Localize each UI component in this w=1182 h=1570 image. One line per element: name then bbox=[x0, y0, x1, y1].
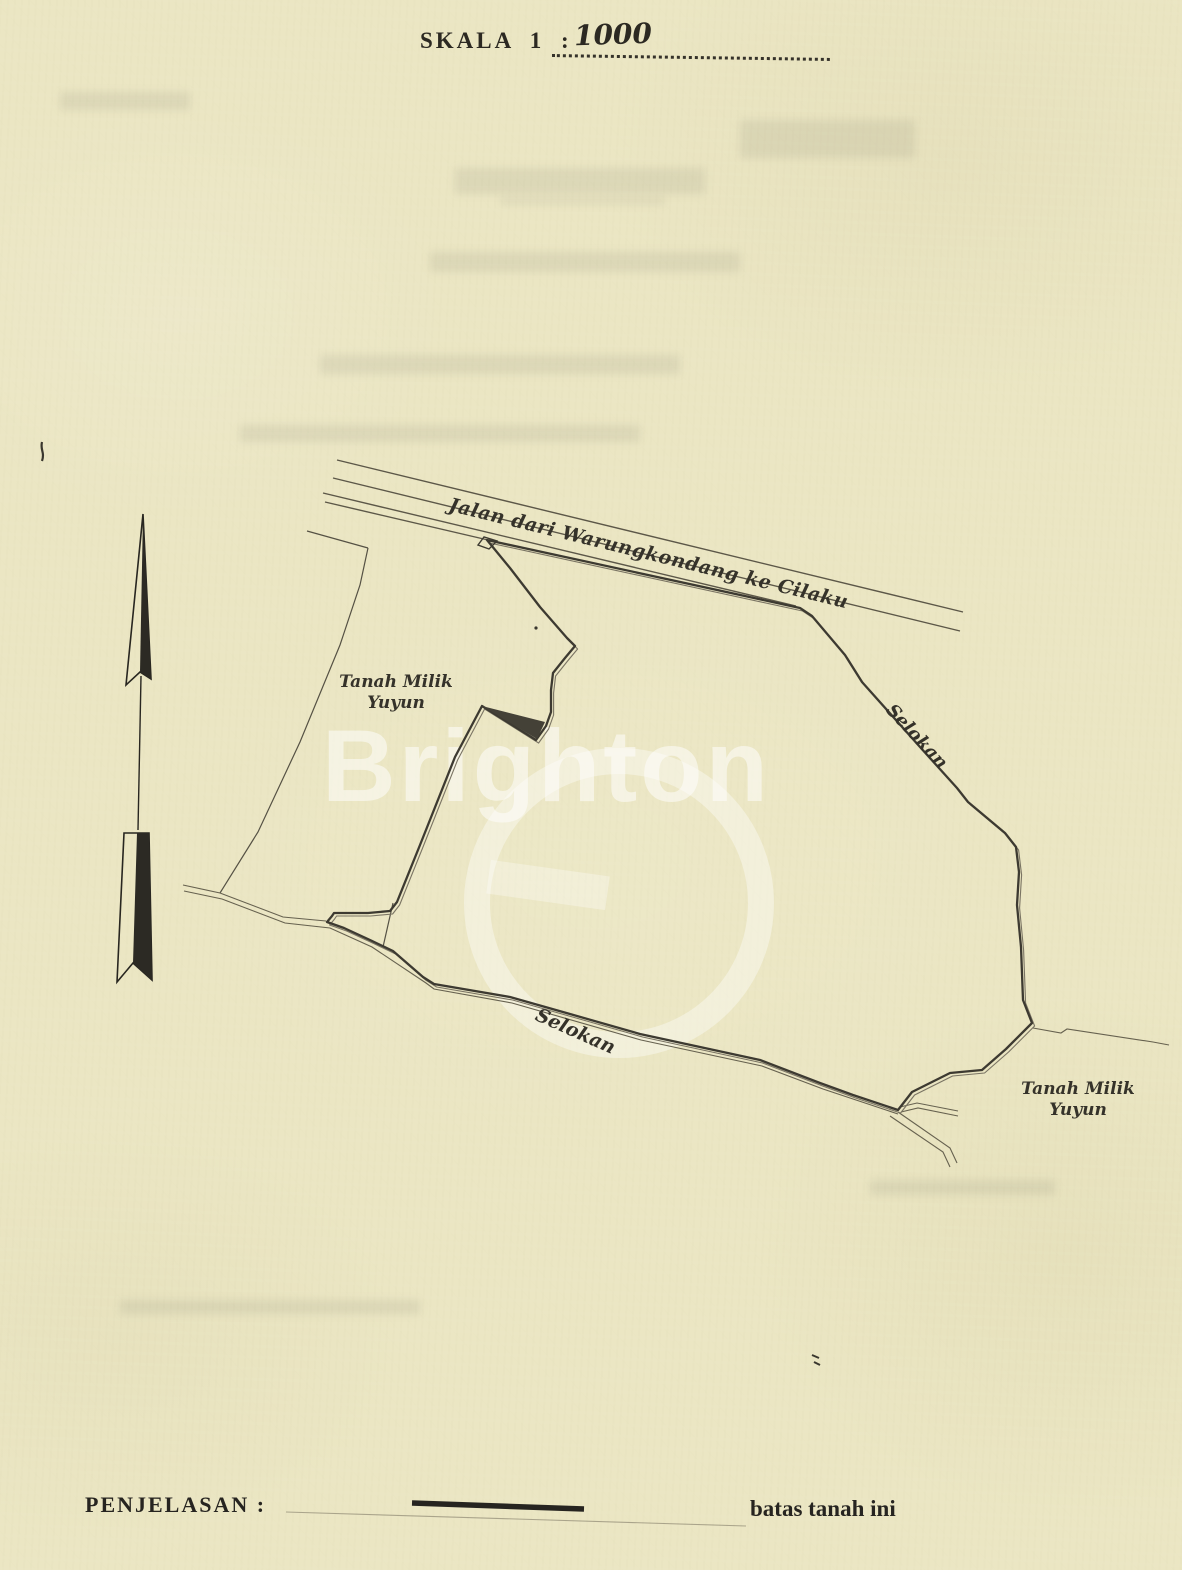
ditch-bottom-lower-line bbox=[184, 891, 898, 1114]
legend-line-meaning: batas tanah ini bbox=[750, 1496, 896, 1522]
ditch-continuation bbox=[898, 1112, 957, 1163]
owner-label-left: Tanah Milik Yuyun bbox=[326, 672, 466, 714]
north-arrow bbox=[117, 514, 152, 982]
ink-specks bbox=[42, 442, 820, 1365]
north-arrow-head-fill bbox=[140, 514, 151, 679]
ditch-bottom-upper-line bbox=[183, 885, 326, 921]
ditch-right-branch-lower bbox=[1033, 1028, 1169, 1045]
legend-title: PENJELASAN : bbox=[85, 1492, 266, 1518]
boundary-outer-pen-line bbox=[330, 543, 1035, 1113]
boundary-ink-wedge bbox=[482, 706, 545, 739]
ink-speck bbox=[812, 1355, 820, 1365]
owner-label-left-line1: Tanah Milik bbox=[326, 672, 466, 693]
owner-label-left-line2: Yuyun bbox=[326, 693, 466, 714]
owner-label-bottom-right-line2: Yuyun bbox=[1008, 1100, 1148, 1121]
division-line-left bbox=[220, 548, 368, 893]
road-edge-line bbox=[337, 460, 963, 612]
owner-label-bottom-right: Tanah Milik Yuyun bbox=[1008, 1079, 1148, 1121]
division-line-spur bbox=[307, 531, 368, 548]
boundary-main-pen-line bbox=[327, 540, 1032, 1110]
owner-label-bottom-right-line1: Tanah Milik bbox=[1008, 1079, 1148, 1100]
ink-speck bbox=[42, 442, 43, 461]
legend-lines bbox=[286, 1503, 746, 1526]
road-edge-line bbox=[323, 493, 796, 606]
legend-faint-line bbox=[286, 1512, 746, 1526]
north-arrow-shaft bbox=[138, 676, 141, 830]
legend-boundary-sample-line bbox=[412, 1503, 584, 1509]
survey-map-linework bbox=[0, 0, 1182, 1570]
north-arrow-tail-fill bbox=[133, 833, 152, 980]
scale-label: SKALA 1 : bbox=[420, 28, 572, 54]
property-division-lines bbox=[220, 531, 393, 947]
ink-dot bbox=[534, 626, 537, 629]
scale-dotted-line bbox=[552, 34, 830, 61]
